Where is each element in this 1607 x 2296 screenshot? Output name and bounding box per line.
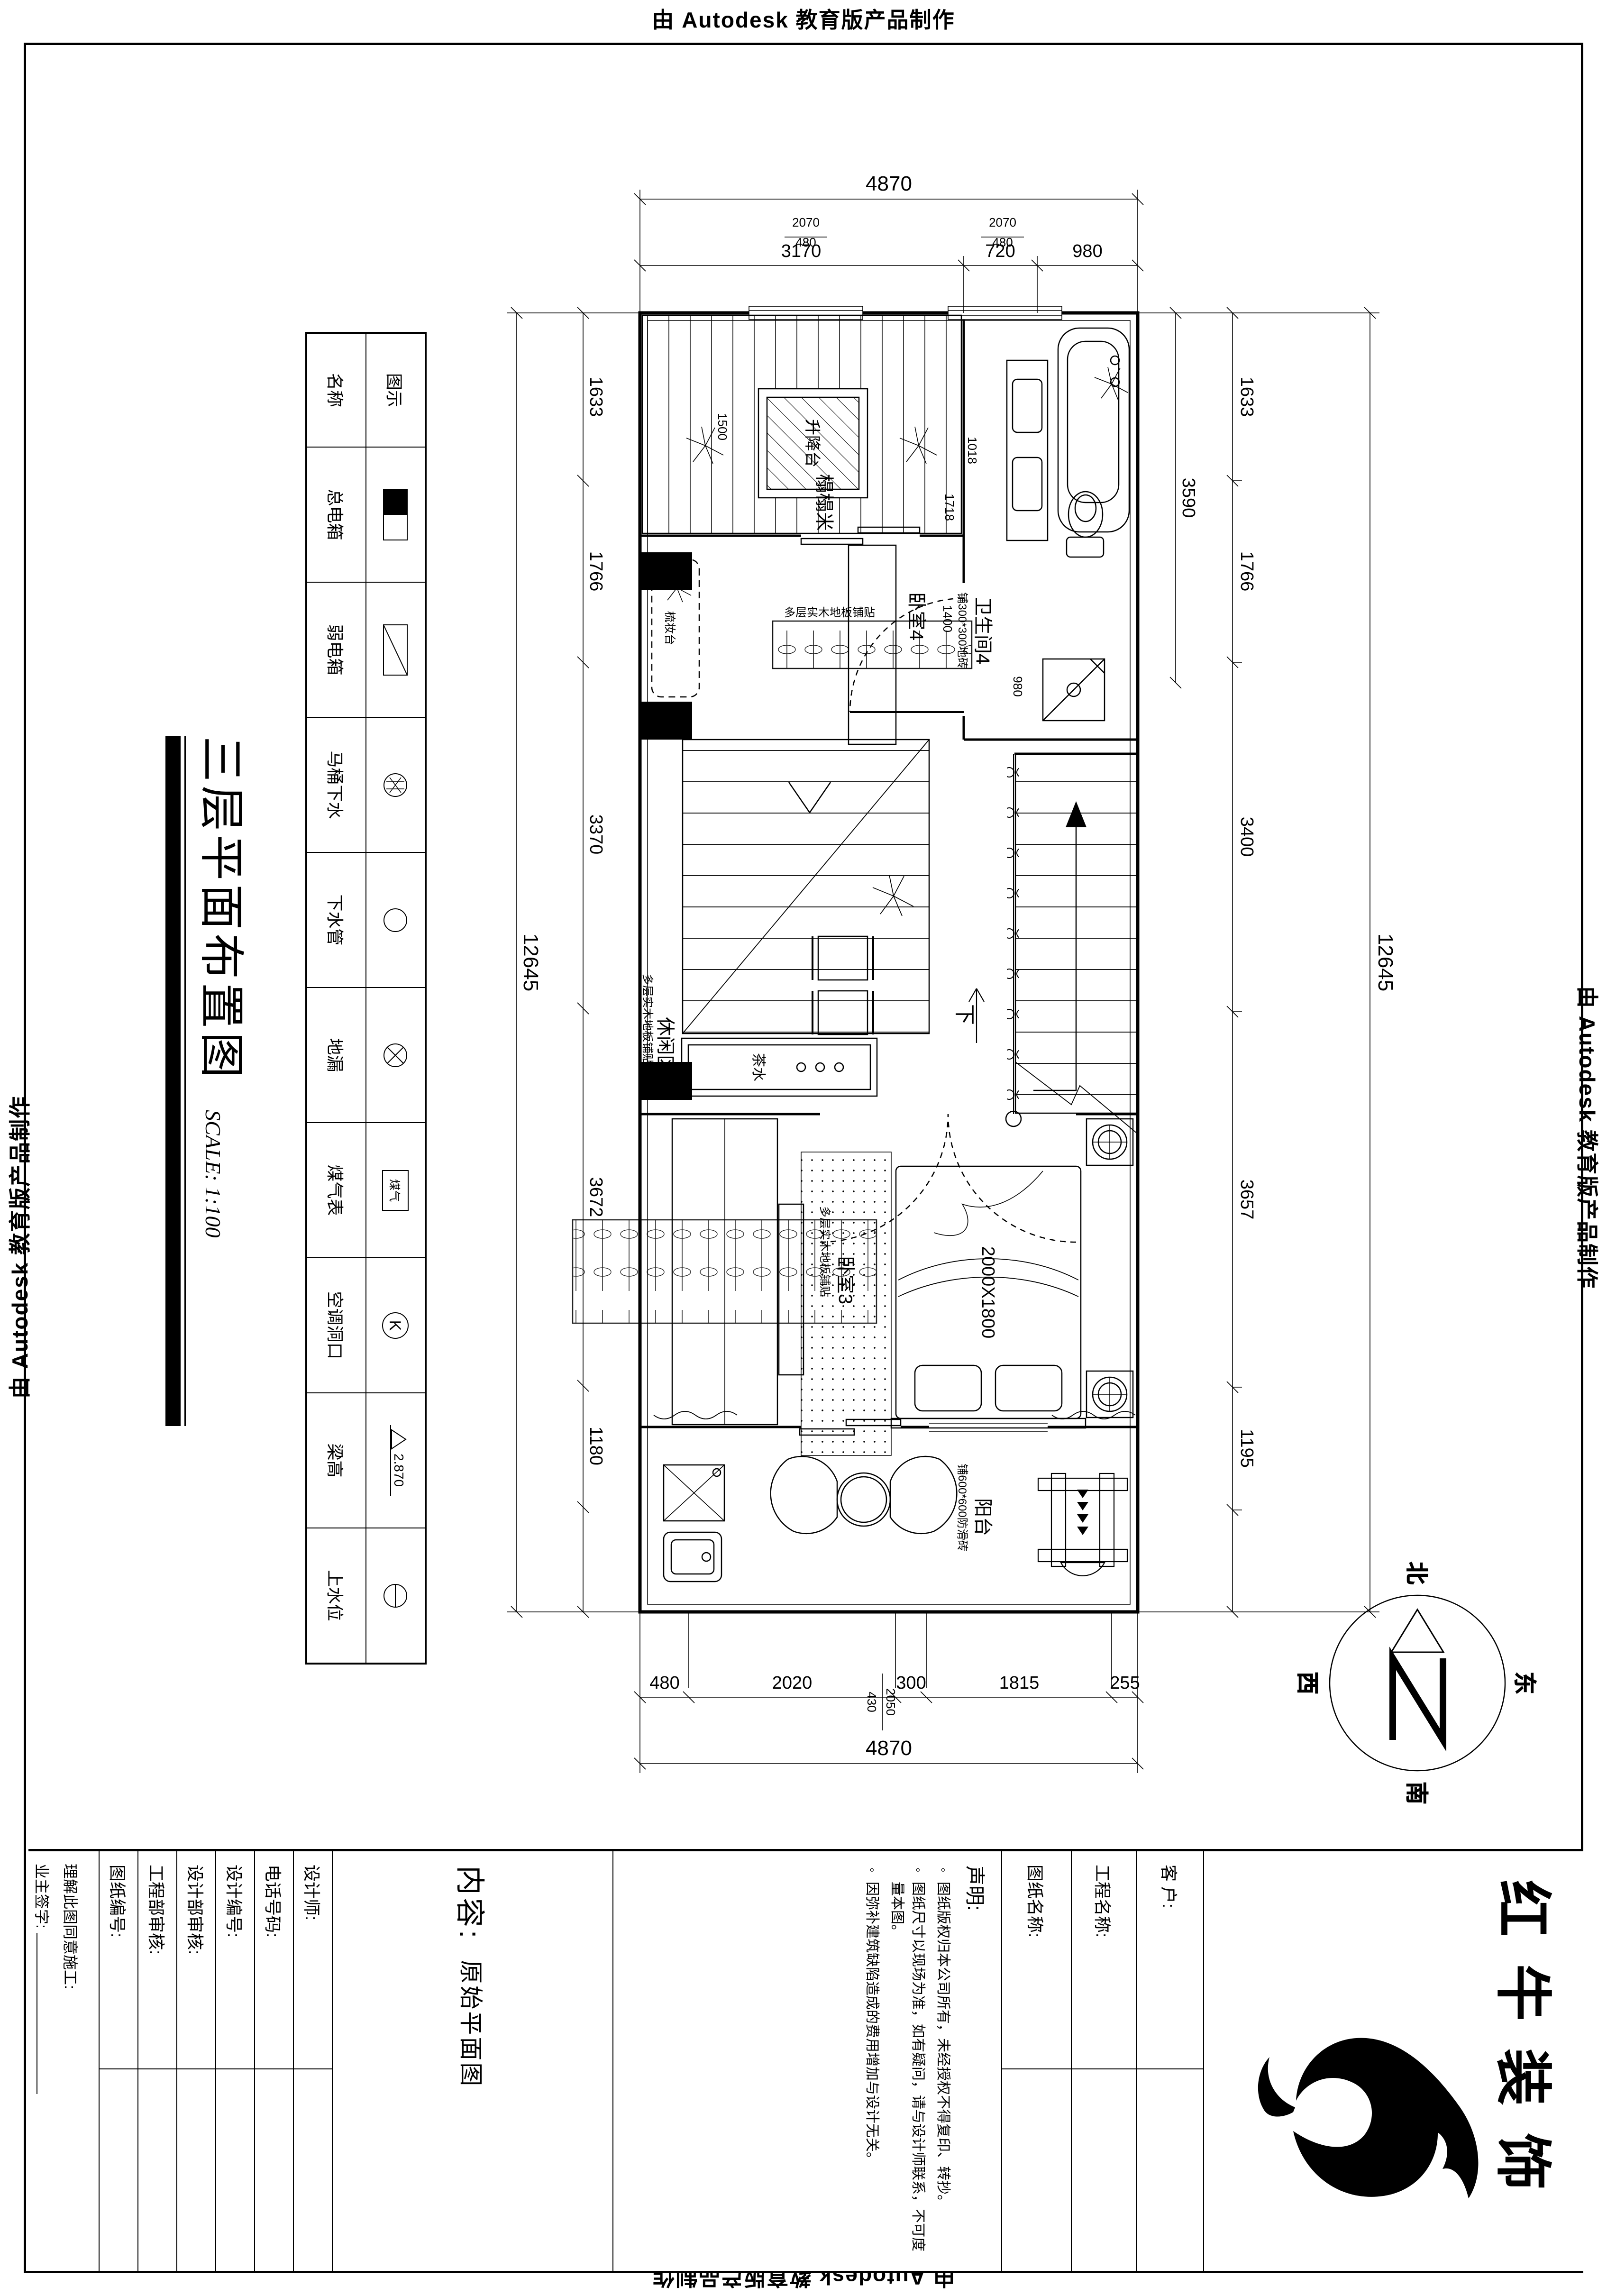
label-dresser: 梳妆台 <box>663 611 676 645</box>
svg-text:480: 480 <box>795 235 816 249</box>
rotated-drawing-area: 12645 1633 1766 3400 3657 1195 12645 163… <box>0 0 1607 2296</box>
company-logo-text: 红牛装饰 <box>1487 1880 1569 2217</box>
dim-left-total: 4870 <box>866 172 912 195</box>
client-value <box>1137 2069 1203 2271</box>
design-no-row: 设计编号: <box>215 1851 254 2271</box>
legend-symbol-beam-height: 2.870 <box>366 1393 425 1528</box>
legend-header-name: 名称 <box>307 333 366 447</box>
label-leisure-note: 多层实木地板铺贴 <box>641 974 654 1065</box>
bathroom <box>1007 328 1129 721</box>
design-review-label: 设计部审核: <box>177 1851 215 2069</box>
agree-label: 理解此图同意施工: <box>61 1864 82 2271</box>
legend-table: 图示 煤气 K 2.870 <box>305 332 427 1665</box>
label-bathroom: 卫生间4 <box>972 597 993 664</box>
phone-label: 电话号码: <box>255 1851 293 2069</box>
label-tatami: 榻榻米 <box>813 474 834 531</box>
legend-name-beam-height: 梁高 <box>307 1393 366 1528</box>
design-review-row: 设计部审核: <box>176 1851 215 2271</box>
svg-text:3672: 3672 <box>586 1177 606 1217</box>
title-underline-thin <box>184 736 186 1426</box>
wicker-chair <box>771 1456 837 1534</box>
eng-review-row: 工程部审核: <box>137 1851 176 2271</box>
project-value <box>1072 2069 1136 2271</box>
svg-text:480: 480 <box>649 1673 679 1693</box>
drawing-name-row: 图纸名称: <box>1001 1851 1071 2271</box>
svg-text:煤气: 煤气 <box>388 1179 401 1202</box>
stairs-upper <box>1006 754 1137 1133</box>
svg-text:1180: 1180 <box>586 1427 606 1465</box>
plan-title-block: 三层平面布置图 SCALE: 1:100 <box>165 736 258 1426</box>
tatami-room <box>642 315 961 544</box>
client-label: 客 户: <box>1137 1851 1203 2069</box>
svg-text:2.870: 2.870 <box>392 1453 407 1486</box>
legend-symbol-main-electric-box <box>366 447 425 582</box>
legend-header-symbol: 图示 <box>366 333 425 447</box>
svg-text:2070: 2070 <box>989 215 1016 229</box>
declaration-item: 因弥补建筑缺陷造成的费用增加与设计无关。 <box>861 1866 882 2257</box>
svg-text:1766: 1766 <box>1237 551 1257 592</box>
label-bathroom-note: 铺300*300地砖 <box>956 592 968 668</box>
svg-text:980: 980 <box>1072 241 1102 261</box>
drawing-name-label: 图纸名称: <box>1002 1851 1071 2069</box>
project-row: 工程名称: <box>1071 1851 1136 2271</box>
svg-text:1400: 1400 <box>940 605 955 632</box>
dim-right-total: 4870 <box>866 1737 912 1760</box>
dim-top-total: 12645 <box>1374 933 1397 991</box>
svg-text:K: K <box>386 1320 404 1331</box>
svg-text:3400: 3400 <box>1237 817 1257 857</box>
pillow <box>995 1365 1062 1411</box>
signature-cell: 理解此图同意施工: 业主签字: <box>16 1851 99 2271</box>
balcony <box>664 1456 1127 1582</box>
drawing-no-label: 图纸编号: <box>100 1851 137 2069</box>
legend-name-water-supply: 上水位 <box>307 1528 366 1663</box>
legend-symbol-toilet-drain <box>366 717 425 852</box>
svg-text:1766: 1766 <box>586 551 606 592</box>
legend-name-main-electric-box: 总电箱 <box>307 447 366 582</box>
legend-symbol-floor-drain <box>366 988 425 1123</box>
legend-symbol-weak-electric-box <box>366 582 425 717</box>
svg-text:3370: 3370 <box>586 814 606 855</box>
legend-symbol-ac-opening: K <box>366 1258 425 1393</box>
compass-west: 西 <box>1295 1672 1320 1694</box>
drawing-no-row: 图纸编号: <box>99 1851 137 2271</box>
eng-review-label: 工程部审核: <box>138 1851 176 2069</box>
label-lift-table: 升降台 <box>803 419 821 467</box>
designer-label: 设计师: <box>294 1851 332 2069</box>
plan-scale: SCALE: 1:100 <box>201 1110 226 1238</box>
label-balcony-note: 铺600*600防滑砖 <box>956 1464 968 1551</box>
content-cell: 内容: 原始平面图 <box>332 1851 612 2271</box>
label-leisure: 休闲区 <box>655 1017 676 1074</box>
svg-text:1633: 1633 <box>1237 377 1257 417</box>
legend-symbol-drain-pipe <box>366 852 425 988</box>
drawing-name-value <box>1002 2069 1071 2271</box>
plan-title: 三层平面布置图 <box>192 736 258 1081</box>
toilet <box>1068 492 1103 537</box>
svg-text:2050: 2050 <box>884 1688 898 1716</box>
title-underline-bar <box>165 736 181 1426</box>
title-block: 红牛装饰 客 户: 工程名称: 图纸名称: 声明: 图纸版权归本公司所有， <box>28 1849 1583 2271</box>
label-bedroom3-note: 多层实木地板铺贴 <box>818 1206 831 1297</box>
declaration-item: 图纸尺寸以现场为准，如有疑问，请与设计师联系，不可度量本图。 <box>887 1866 928 2257</box>
compass-north: 北 <box>1404 1562 1429 1584</box>
north-compass: 北 东 南 西 <box>1295 1562 1537 1804</box>
declaration-cell: 声明: 图纸版权归本公司所有，未经授权不得复印、转抄。 图纸尺寸以现场为准，如有… <box>612 1851 1001 2271</box>
content-label: 内容: <box>451 1866 494 1941</box>
svg-text:300: 300 <box>896 1673 926 1693</box>
fitness-equipment <box>1038 1473 1127 1576</box>
svg-text:1018: 1018 <box>965 437 979 464</box>
pillow <box>915 1365 981 1411</box>
declaration-title: 声明: <box>960 1866 989 2257</box>
svg-text:1195: 1195 <box>1237 1429 1257 1468</box>
drawing-sheet: 由 Autodesk 教育版产品制作 由 Autodesk 教育版产品制作 由 … <box>0 0 1607 2296</box>
legend-name-floor-drain: 地漏 <box>307 988 366 1123</box>
declaration-item: 图纸版权归本公司所有，未经授权不得复印、转抄。 <box>933 1866 954 2257</box>
logo-cell: 红牛装饰 <box>1203 1851 1583 2271</box>
wicker-chair <box>890 1456 957 1534</box>
dim-bottom-total: 12645 <box>519 933 542 991</box>
label-balcony: 阳台 <box>972 1498 993 1536</box>
svg-text:1633: 1633 <box>586 377 606 417</box>
svg-text:3657: 3657 <box>1237 1180 1257 1220</box>
svg-text:2020: 2020 <box>772 1673 813 1693</box>
tea-cabinet <box>682 1038 877 1096</box>
legend-name-ac-opening: 空调洞口 <box>307 1258 366 1393</box>
svg-text:255: 255 <box>1110 1673 1140 1693</box>
compass-south: 南 <box>1404 1782 1429 1804</box>
plant <box>1095 367 1128 400</box>
phone-row: 电话号码: <box>254 1851 293 2271</box>
content-value: 原始平面图 <box>456 1960 490 2088</box>
svg-text:1718: 1718 <box>942 494 957 521</box>
label-tea: 茶水 <box>750 1053 766 1081</box>
bedroom4-area <box>652 545 972 744</box>
designer-row: 设计师: <box>293 1851 332 2271</box>
legend-symbol-gas-meter: 煤气 <box>366 1123 425 1258</box>
compass-east: 东 <box>1512 1672 1537 1694</box>
label-floor-note: 多层实木地板铺贴 <box>784 606 875 619</box>
round-table <box>837 1473 890 1526</box>
svg-text:3590: 3590 <box>1178 478 1198 518</box>
svg-text:430: 430 <box>865 1692 879 1712</box>
label-down: 下 <box>953 1004 976 1025</box>
svg-text:2070: 2070 <box>792 215 820 229</box>
legend-symbol-water-supply <box>366 1528 425 1663</box>
svg-text:1500: 1500 <box>715 413 730 440</box>
client-row: 客 户: <box>1136 1851 1203 2271</box>
label-bedroom4: 卧室4 <box>906 592 927 640</box>
svg-text:480: 480 <box>992 235 1013 249</box>
legend-name-weak-electric-box: 弱电箱 <box>307 582 366 717</box>
design-no-label: 设计编号: <box>216 1851 254 2069</box>
stairs-lower <box>683 740 929 1034</box>
label-bedroom3: 卧室3 <box>835 1256 856 1304</box>
bed-size: 2000X1800 <box>978 1246 998 1338</box>
project-label: 工程名称: <box>1072 1851 1136 2069</box>
svg-text:980: 980 <box>1011 676 1025 696</box>
bull-logo-icon <box>1237 1951 1493 2216</box>
legend-name-drain-pipe: 下水管 <box>307 852 366 988</box>
legend-name-toilet-drain: 马桶下水 <box>307 717 366 852</box>
svg-text:1815: 1815 <box>999 1673 1040 1693</box>
legend-name-gas-meter: 煤气表 <box>307 1123 366 1258</box>
signature-line <box>37 1933 50 2094</box>
owner-sign-label: 业主签字: <box>34 1864 51 1929</box>
